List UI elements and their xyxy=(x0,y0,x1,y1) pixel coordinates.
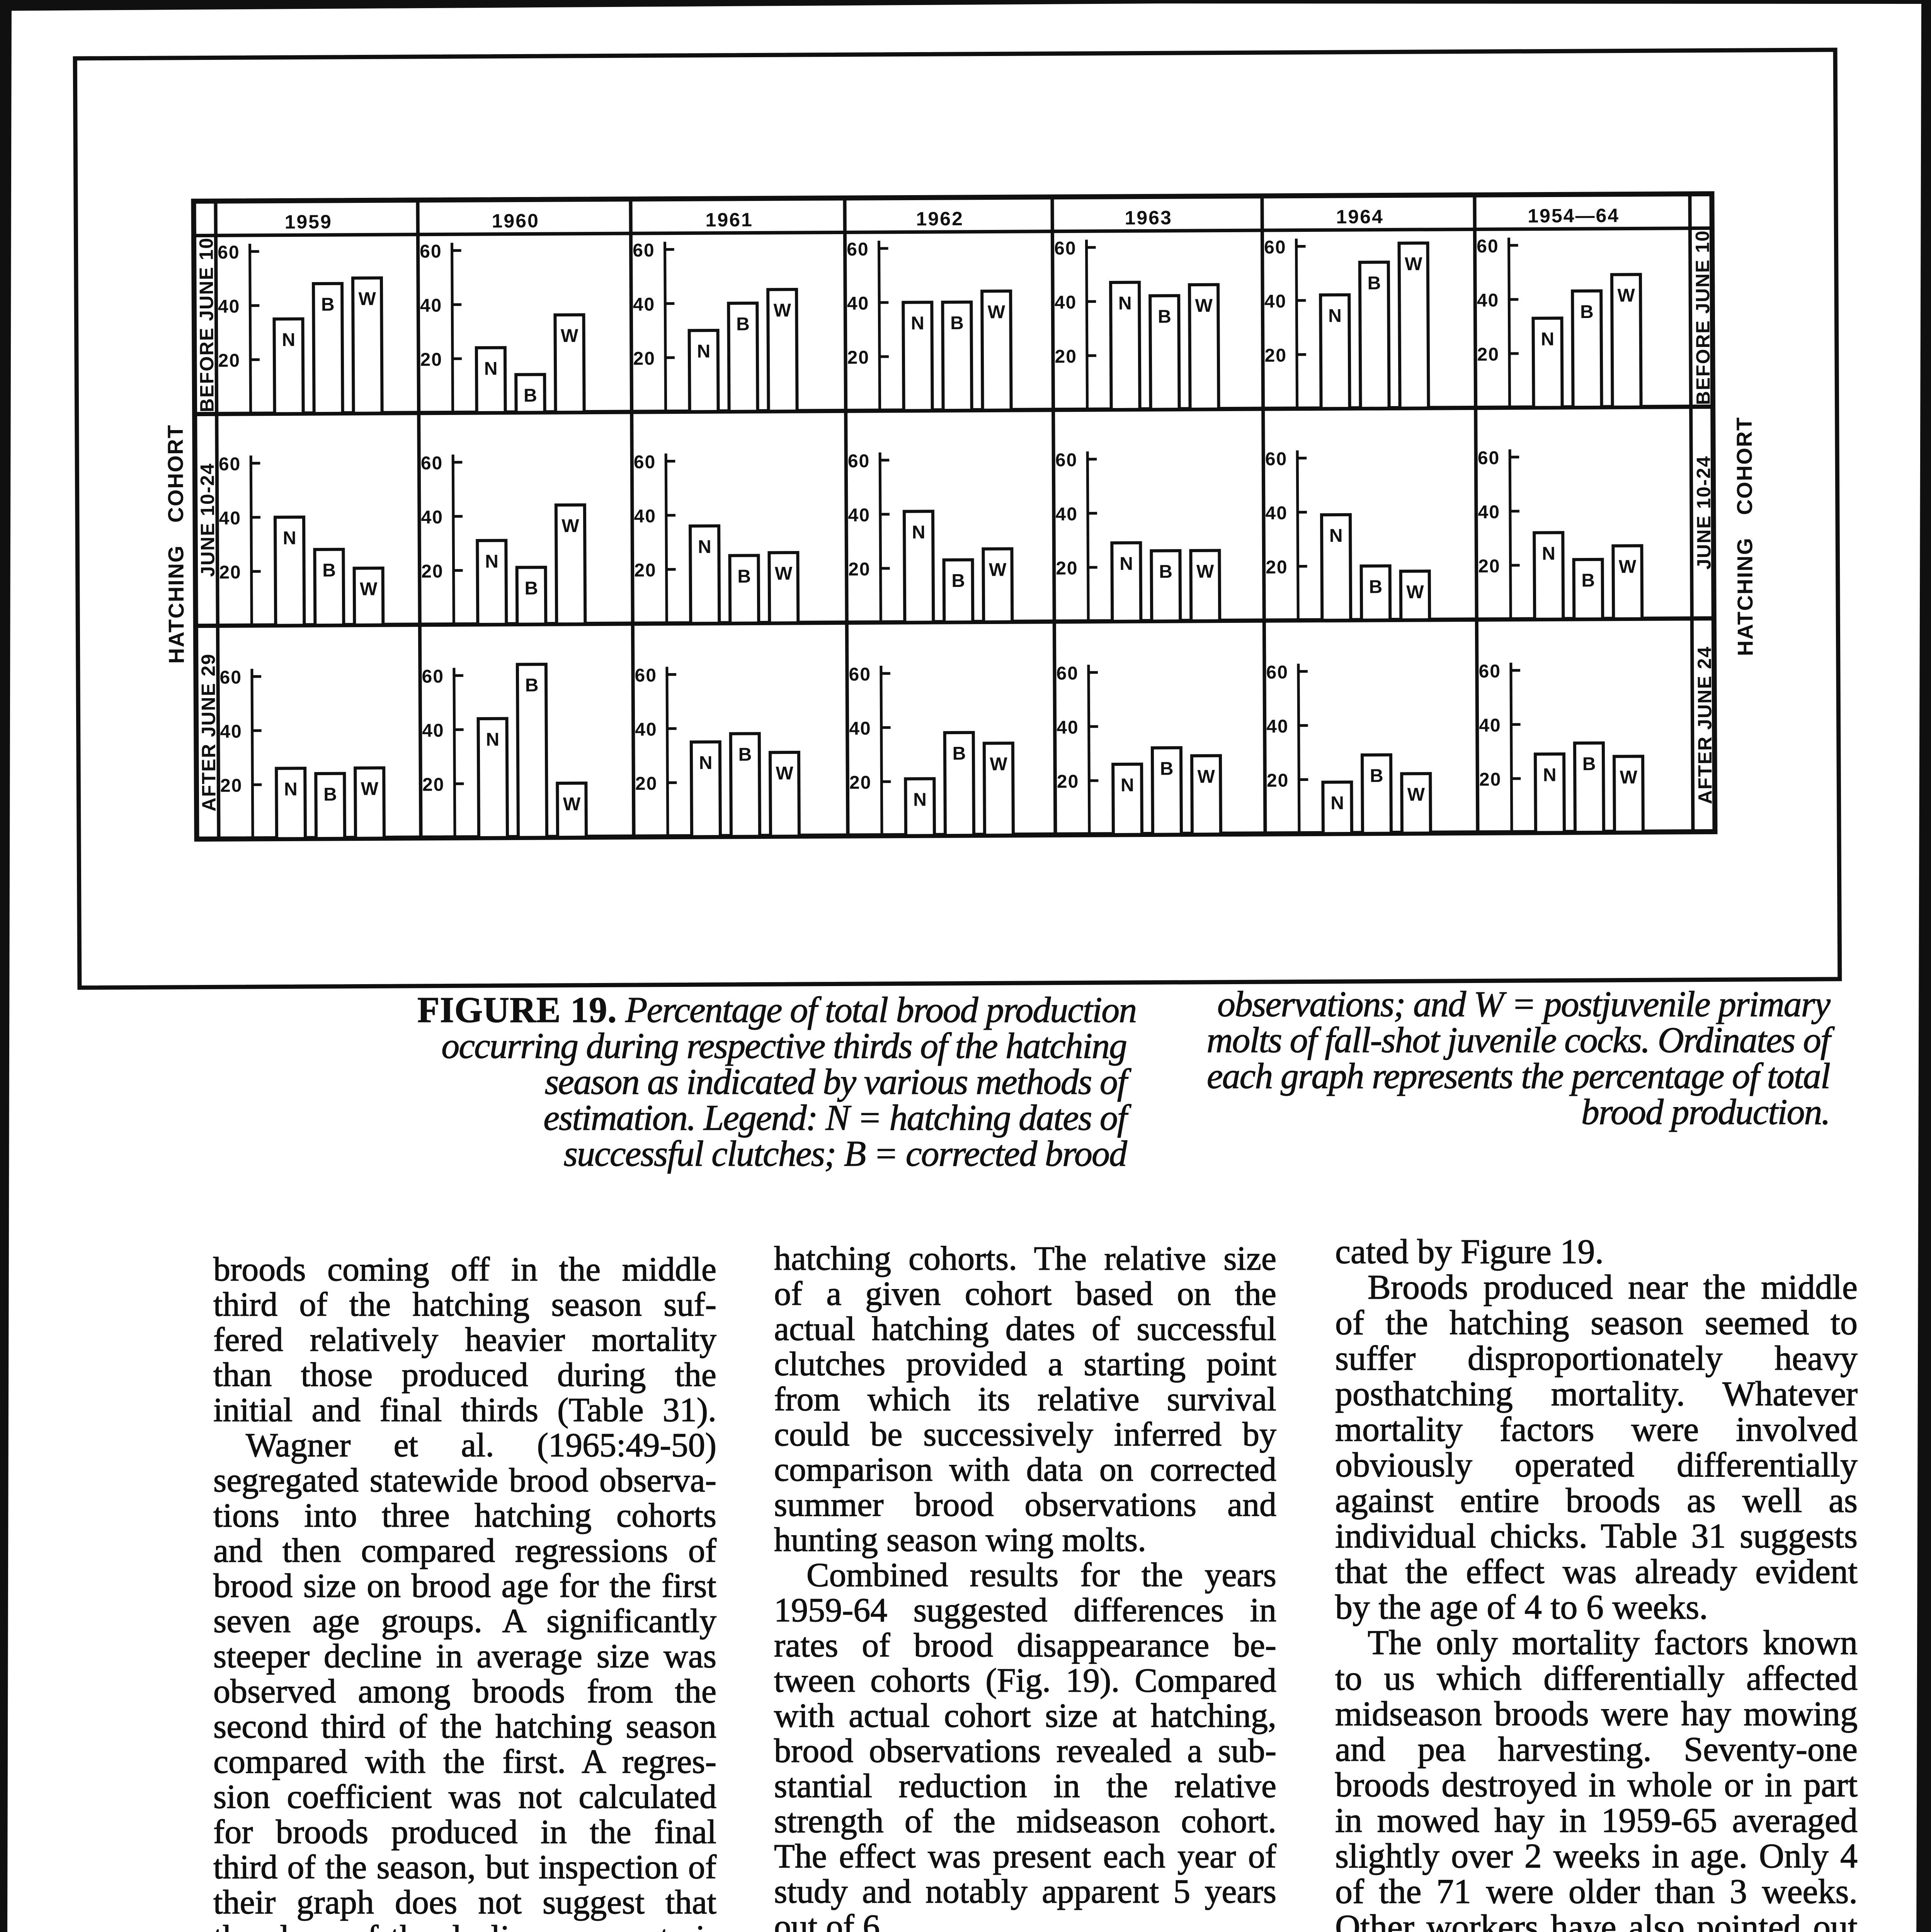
svg-text:B: B xyxy=(736,314,750,335)
svg-text:B: B xyxy=(953,743,966,764)
svg-text:60: 60 xyxy=(420,241,442,262)
svg-text:B: B xyxy=(1369,577,1382,597)
svg-text:60: 60 xyxy=(219,454,241,474)
svg-text:60: 60 xyxy=(1478,448,1500,468)
svg-text:20: 20 xyxy=(849,772,872,793)
svg-text:20: 20 xyxy=(1264,345,1287,366)
svg-text:20: 20 xyxy=(633,349,655,369)
svg-text:B: B xyxy=(323,784,337,805)
svg-text:60: 60 xyxy=(633,240,655,261)
svg-text:N: N xyxy=(1118,293,1132,314)
svg-text:B: B xyxy=(1158,306,1171,327)
svg-text:20: 20 xyxy=(634,560,657,581)
svg-text:20: 20 xyxy=(847,347,869,368)
svg-text:B: B xyxy=(524,385,537,406)
svg-text:N: N xyxy=(698,537,711,557)
svg-text:1954—64: 1954—64 xyxy=(1528,205,1620,227)
svg-text:W: W xyxy=(561,516,579,536)
svg-text:W: W xyxy=(1196,561,1214,582)
svg-text:B: B xyxy=(1580,302,1594,322)
svg-text:W: W xyxy=(561,326,578,346)
svg-text:W: W xyxy=(1197,767,1215,787)
svg-text:60: 60 xyxy=(1266,662,1288,683)
svg-text:40: 40 xyxy=(1055,504,1078,524)
svg-text:JUNE 10-24: JUNE 10-24 xyxy=(196,463,218,577)
svg-text:N: N xyxy=(485,551,498,572)
svg-text:20: 20 xyxy=(220,776,243,796)
svg-text:60: 60 xyxy=(1264,237,1286,258)
svg-text:N: N xyxy=(486,730,499,750)
svg-text:20: 20 xyxy=(1057,771,1079,792)
svg-text:B: B xyxy=(525,675,539,696)
svg-text:N: N xyxy=(1329,526,1343,546)
svg-text:B: B xyxy=(737,566,751,587)
svg-text:B: B xyxy=(1368,273,1381,294)
svg-text:W: W xyxy=(1406,582,1424,602)
svg-text:N: N xyxy=(1121,775,1134,796)
svg-text:60: 60 xyxy=(1056,663,1079,684)
svg-text:W: W xyxy=(1407,784,1425,805)
svg-text:W: W xyxy=(1617,285,1635,306)
svg-text:40: 40 xyxy=(1057,717,1079,738)
svg-text:AFTER JUNE 29: AFTER JUNE 29 xyxy=(197,653,220,812)
svg-text:W: W xyxy=(1195,296,1213,316)
svg-text:W: W xyxy=(776,763,793,784)
svg-text:1961: 1961 xyxy=(705,209,753,231)
svg-text:N: N xyxy=(911,313,924,333)
svg-text:40: 40 xyxy=(421,507,443,527)
svg-text:60: 60 xyxy=(849,664,871,685)
svg-text:B: B xyxy=(1159,561,1172,582)
svg-text:20: 20 xyxy=(1055,346,1077,367)
svg-text:40: 40 xyxy=(1266,716,1289,737)
svg-text:N: N xyxy=(697,341,710,362)
svg-text:40: 40 xyxy=(1055,292,1077,313)
svg-text:60: 60 xyxy=(634,452,656,473)
svg-text:60: 60 xyxy=(1055,450,1078,470)
svg-text:40: 40 xyxy=(635,719,657,740)
svg-text:B: B xyxy=(1582,754,1596,774)
svg-text:W: W xyxy=(358,289,376,309)
svg-text:40: 40 xyxy=(849,718,871,739)
svg-text:40: 40 xyxy=(634,506,656,527)
svg-text:N: N xyxy=(283,528,296,548)
svg-text:W: W xyxy=(563,794,581,815)
svg-text:1963: 1963 xyxy=(1125,207,1172,229)
svg-text:1964: 1964 xyxy=(1336,206,1384,228)
svg-text:B: B xyxy=(951,571,965,591)
svg-text:W: W xyxy=(1620,767,1638,787)
svg-text:N: N xyxy=(913,789,927,810)
svg-text:40: 40 xyxy=(1264,291,1287,312)
svg-text:W: W xyxy=(1405,254,1422,274)
svg-text:W: W xyxy=(775,563,793,584)
svg-text:40: 40 xyxy=(420,295,442,316)
svg-text:40: 40 xyxy=(422,720,444,741)
svg-text:40: 40 xyxy=(220,721,242,742)
svg-text:N: N xyxy=(282,330,295,350)
svg-text:60: 60 xyxy=(1054,238,1077,259)
svg-text:BEFORE JUNE 10: BEFORE JUNE 10 xyxy=(195,237,218,412)
svg-text:N: N xyxy=(484,359,498,379)
svg-text:B: B xyxy=(1370,766,1383,786)
svg-text:40: 40 xyxy=(1478,502,1500,522)
svg-text:W: W xyxy=(990,754,1007,774)
svg-text:60: 60 xyxy=(635,665,657,686)
svg-text:40: 40 xyxy=(847,293,869,314)
svg-text:40: 40 xyxy=(633,294,655,315)
svg-text:N: N xyxy=(284,779,298,799)
svg-text:40: 40 xyxy=(1477,290,1499,311)
svg-text:HATCHING COHORT: HATCHING COHORT xyxy=(163,424,189,664)
svg-text:60: 60 xyxy=(218,242,240,263)
svg-text:B: B xyxy=(1581,570,1595,591)
svg-text:B: B xyxy=(322,560,336,581)
svg-text:HATCHING COHORT: HATCHING COHORT xyxy=(1732,417,1757,656)
svg-text:60: 60 xyxy=(219,667,242,688)
svg-text:W: W xyxy=(988,302,1005,322)
svg-text:20: 20 xyxy=(420,349,442,370)
svg-text:1960: 1960 xyxy=(492,210,539,232)
svg-text:W: W xyxy=(360,579,378,599)
svg-text:W: W xyxy=(361,779,379,799)
svg-text:B: B xyxy=(950,313,964,333)
svg-text:20: 20 xyxy=(1477,344,1499,365)
svg-text:60: 60 xyxy=(1478,661,1501,682)
svg-text:20: 20 xyxy=(421,561,444,582)
svg-text:40: 40 xyxy=(1265,503,1288,524)
svg-text:B: B xyxy=(321,294,335,315)
svg-text:W: W xyxy=(774,300,791,321)
svg-text:20: 20 xyxy=(422,774,445,795)
svg-text:40: 40 xyxy=(848,505,870,526)
svg-text:N: N xyxy=(1328,306,1342,326)
svg-text:N: N xyxy=(699,753,713,773)
svg-text:W: W xyxy=(989,560,1007,580)
svg-text:20: 20 xyxy=(1479,769,1502,790)
svg-text:N: N xyxy=(1119,554,1133,574)
svg-text:W: W xyxy=(1619,556,1637,577)
svg-text:B: B xyxy=(1160,759,1174,779)
svg-text:20: 20 xyxy=(218,350,240,371)
svg-text:60: 60 xyxy=(848,451,870,471)
svg-text:20: 20 xyxy=(219,562,242,583)
svg-text:BEFORE JUNE 10: BEFORE JUNE 10 xyxy=(1691,230,1714,405)
svg-text:N: N xyxy=(912,522,926,543)
svg-text:20: 20 xyxy=(848,559,871,580)
svg-text:60: 60 xyxy=(1265,449,1288,469)
svg-text:20: 20 xyxy=(1266,557,1288,578)
svg-text:B: B xyxy=(524,578,538,599)
svg-text:1962: 1962 xyxy=(916,208,964,230)
svg-text:60: 60 xyxy=(422,666,444,687)
svg-text:B: B xyxy=(738,745,752,765)
svg-text:N: N xyxy=(1542,543,1555,564)
svg-text:40: 40 xyxy=(1479,715,1501,736)
svg-text:20: 20 xyxy=(1267,770,1289,791)
svg-text:N: N xyxy=(1543,765,1557,785)
svg-text:60: 60 xyxy=(847,239,869,260)
svg-text:JUNE 10-24: JUNE 10-24 xyxy=(1693,456,1715,570)
svg-text:N: N xyxy=(1541,329,1554,349)
svg-text:60: 60 xyxy=(421,453,443,473)
svg-text:40: 40 xyxy=(218,296,240,317)
svg-text:N: N xyxy=(1330,793,1344,813)
svg-text:AFTER JUNE 24: AFTER JUNE 24 xyxy=(1694,646,1716,804)
svg-text:40: 40 xyxy=(219,508,241,529)
svg-text:20: 20 xyxy=(635,774,658,794)
svg-text:1959: 1959 xyxy=(284,211,332,233)
svg-text:20: 20 xyxy=(1478,556,1501,577)
svg-text:20: 20 xyxy=(1056,558,1078,578)
svg-text:60: 60 xyxy=(1477,236,1499,257)
